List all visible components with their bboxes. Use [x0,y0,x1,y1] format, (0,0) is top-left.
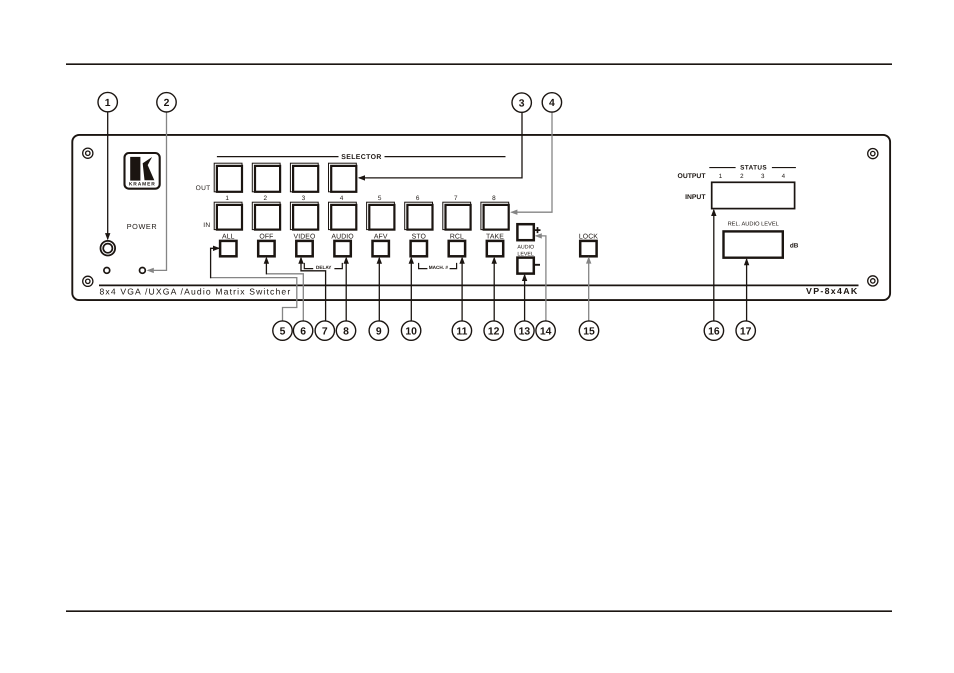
svg-text:VP-8x4AK: VP-8x4AK [806,286,858,296]
svg-text:AUDIO: AUDIO [517,245,534,251]
svg-text:OUTPUT: OUTPUT [678,173,707,180]
svg-text:4: 4 [549,98,555,109]
svg-text:KRAMER: KRAMER [129,181,156,187]
svg-text:MACH. #: MACH. # [429,265,449,270]
svg-text:SELECTOR: SELECTOR [341,154,382,161]
svg-text:7: 7 [454,195,458,202]
svg-text:13: 13 [519,326,531,337]
svg-text:POWER: POWER [127,222,158,231]
svg-text:8x4 VGA /UXGA /Audio Matrix Sw: 8x4 VGA /UXGA /Audio Matrix Switcher [100,286,292,296]
svg-text:6: 6 [300,326,306,337]
svg-text:8: 8 [343,326,349,337]
svg-text:INPUT: INPUT [685,194,706,201]
svg-text:1: 1 [719,173,723,180]
svg-text:1: 1 [105,98,111,109]
svg-text:15: 15 [583,326,595,337]
svg-text:AUDIO: AUDIO [331,233,354,240]
svg-text:1: 1 [225,195,229,202]
svg-text:2: 2 [264,195,268,202]
svg-text:16: 16 [708,326,720,337]
svg-text:DELAY: DELAY [316,265,332,270]
svg-text:17: 17 [740,326,752,337]
svg-text:STATUS: STATUS [740,164,767,171]
svg-text:12: 12 [488,326,500,337]
svg-text:3: 3 [761,173,765,180]
svg-text:9: 9 [376,326,382,337]
svg-text:3: 3 [302,195,306,202]
svg-text:10: 10 [405,326,417,337]
svg-text:OUT: OUT [196,185,211,192]
svg-text:dB: dB [790,243,799,250]
svg-text:5: 5 [280,326,286,337]
svg-text:7: 7 [322,326,328,337]
svg-text:4: 4 [340,195,344,202]
svg-text:LOCK: LOCK [579,233,598,240]
svg-text:14: 14 [540,326,552,337]
svg-text:2: 2 [740,173,744,180]
svg-text:5: 5 [378,195,382,202]
svg-text:2: 2 [164,98,170,109]
svg-text:IN: IN [203,222,210,229]
svg-text:RCL: RCL [450,233,464,240]
svg-text:AFV: AFV [374,233,388,240]
svg-text:3: 3 [519,98,525,109]
svg-text:6: 6 [416,195,420,202]
svg-text:REL. AUDIO LEVEL: REL. AUDIO LEVEL [728,222,779,228]
svg-text:VIDEO: VIDEO [294,233,316,240]
svg-text:8: 8 [492,195,496,202]
svg-text:4: 4 [782,173,786,180]
svg-text:11: 11 [456,326,467,337]
svg-text:TAKE: TAKE [486,233,504,240]
svg-text:ALL: ALL [222,233,235,240]
svg-text:STO: STO [412,233,427,240]
svg-text:OFF: OFF [259,233,273,240]
